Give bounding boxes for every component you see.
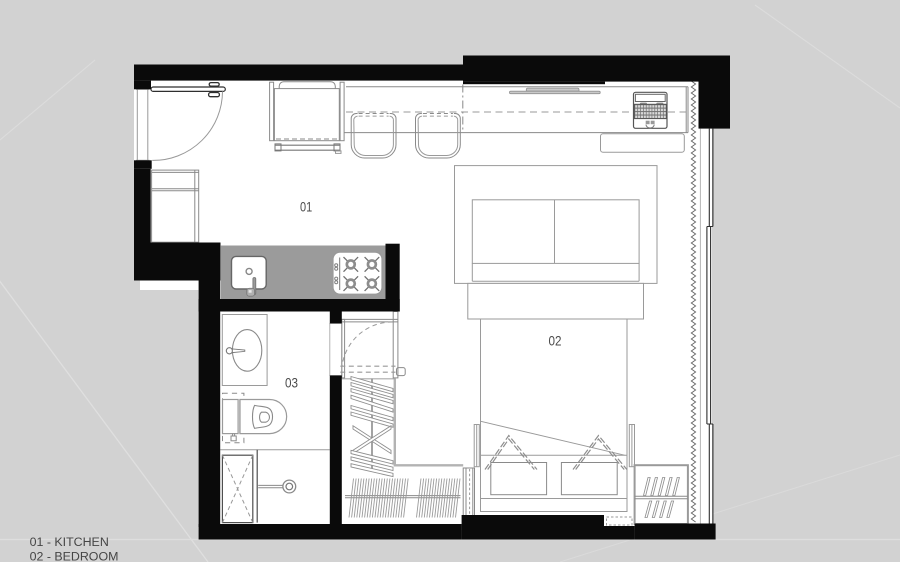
- svg-text:03: 03: [285, 375, 298, 391]
- svg-text:02: 02: [549, 333, 562, 349]
- svg-text:01 - KITCHEN: 01 - KITCHEN: [30, 535, 109, 549]
- svg-text:02 - BEDROOM: 02 - BEDROOM: [30, 549, 119, 562]
- svg-text:01: 01: [300, 198, 312, 214]
